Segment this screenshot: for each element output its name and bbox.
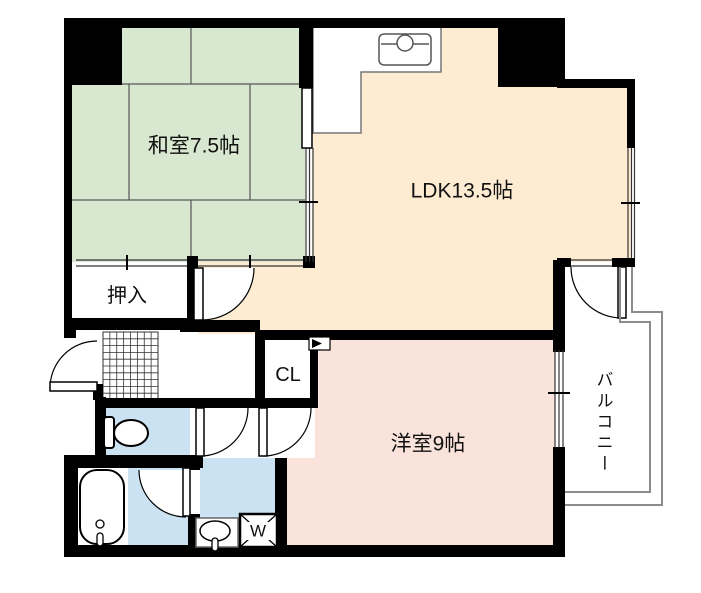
kitchen-sink-icon: [379, 34, 431, 65]
japanese-room-partition-icon: [306, 148, 313, 262]
closet-folding-door-icon: [309, 337, 330, 350]
western-room-door-icon: [259, 408, 311, 456]
balcony-label: バルコニー: [591, 371, 616, 476]
washroom-door-icon: [196, 408, 248, 456]
toilet-icon: [104, 417, 148, 448]
bathtub-icon: [80, 470, 124, 546]
floor-plan-drawing: [0, 0, 701, 593]
ldk-label: LDK13.5帖: [411, 181, 514, 202]
japanese-room-label: 和室7.5帖: [148, 136, 240, 157]
washing-machine-label: W: [250, 523, 266, 540]
floor-plan: 和室7.5帖 LDK13.5帖 押入 CL 洋室9帖 バルコニー W: [0, 0, 701, 593]
sliding-door-leaf-icon: [302, 88, 312, 148]
western-room-window-icon: [555, 350, 563, 447]
western-room-label: 洋室9帖: [391, 434, 466, 455]
oshiire-label: 押入: [107, 286, 147, 306]
genkan-tile-grid-icon: [103, 332, 158, 400]
western-room-floor-ext: [285, 458, 315, 547]
entry-door-icon: [50, 341, 97, 391]
closet-label: CL: [275, 365, 301, 385]
balcony-door-icon: [571, 267, 626, 318]
washbasin-icon: [196, 518, 238, 551]
